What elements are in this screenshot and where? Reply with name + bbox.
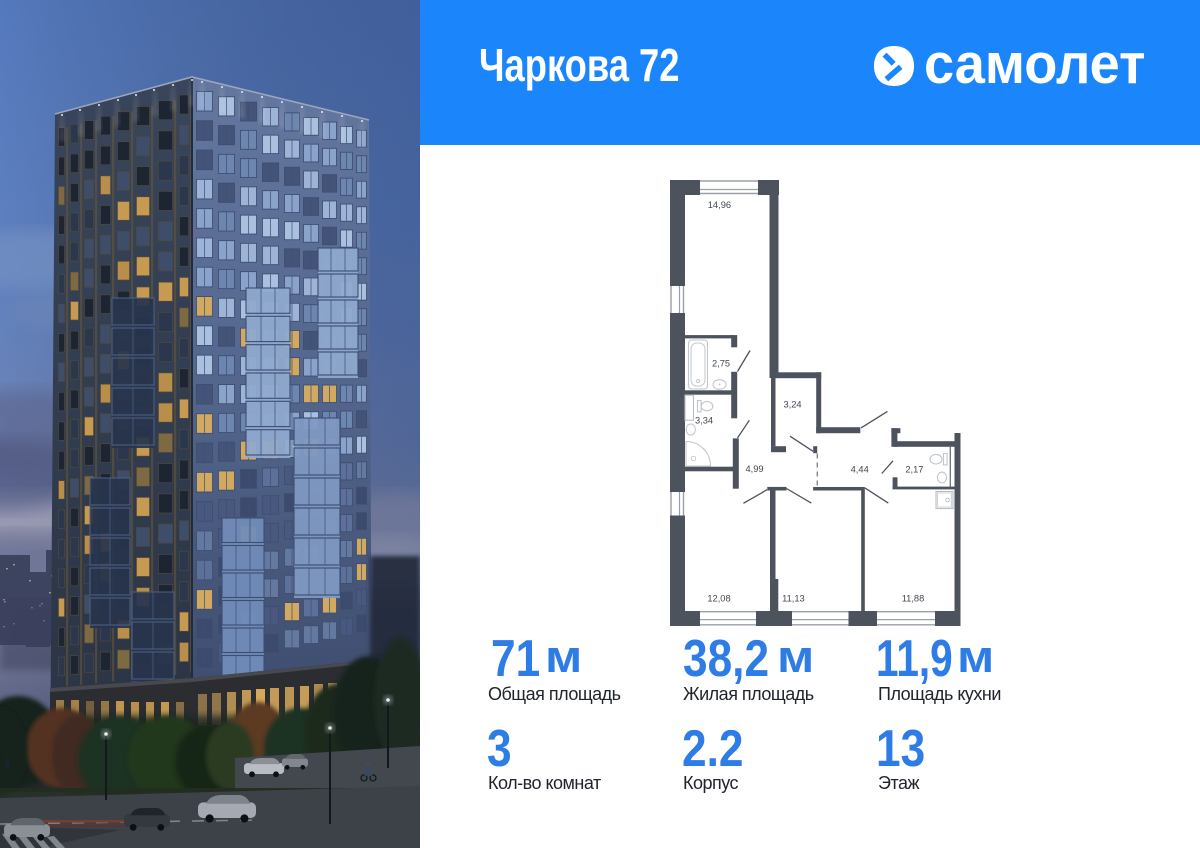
svg-text:12,08: 12,08 xyxy=(707,594,730,604)
svg-text:2,17: 2,17 xyxy=(905,465,923,475)
svg-text:3,24: 3,24 xyxy=(783,400,801,410)
svg-text:4,99: 4,99 xyxy=(745,464,763,474)
svg-text:4,44: 4,44 xyxy=(851,465,869,475)
svg-text:11,13: 11,13 xyxy=(782,594,805,604)
svg-text:11,88: 11,88 xyxy=(902,594,925,604)
svg-text:2,75: 2,75 xyxy=(712,358,730,368)
svg-text:14,96: 14,96 xyxy=(708,200,731,210)
svg-text:3,34: 3,34 xyxy=(695,415,713,425)
